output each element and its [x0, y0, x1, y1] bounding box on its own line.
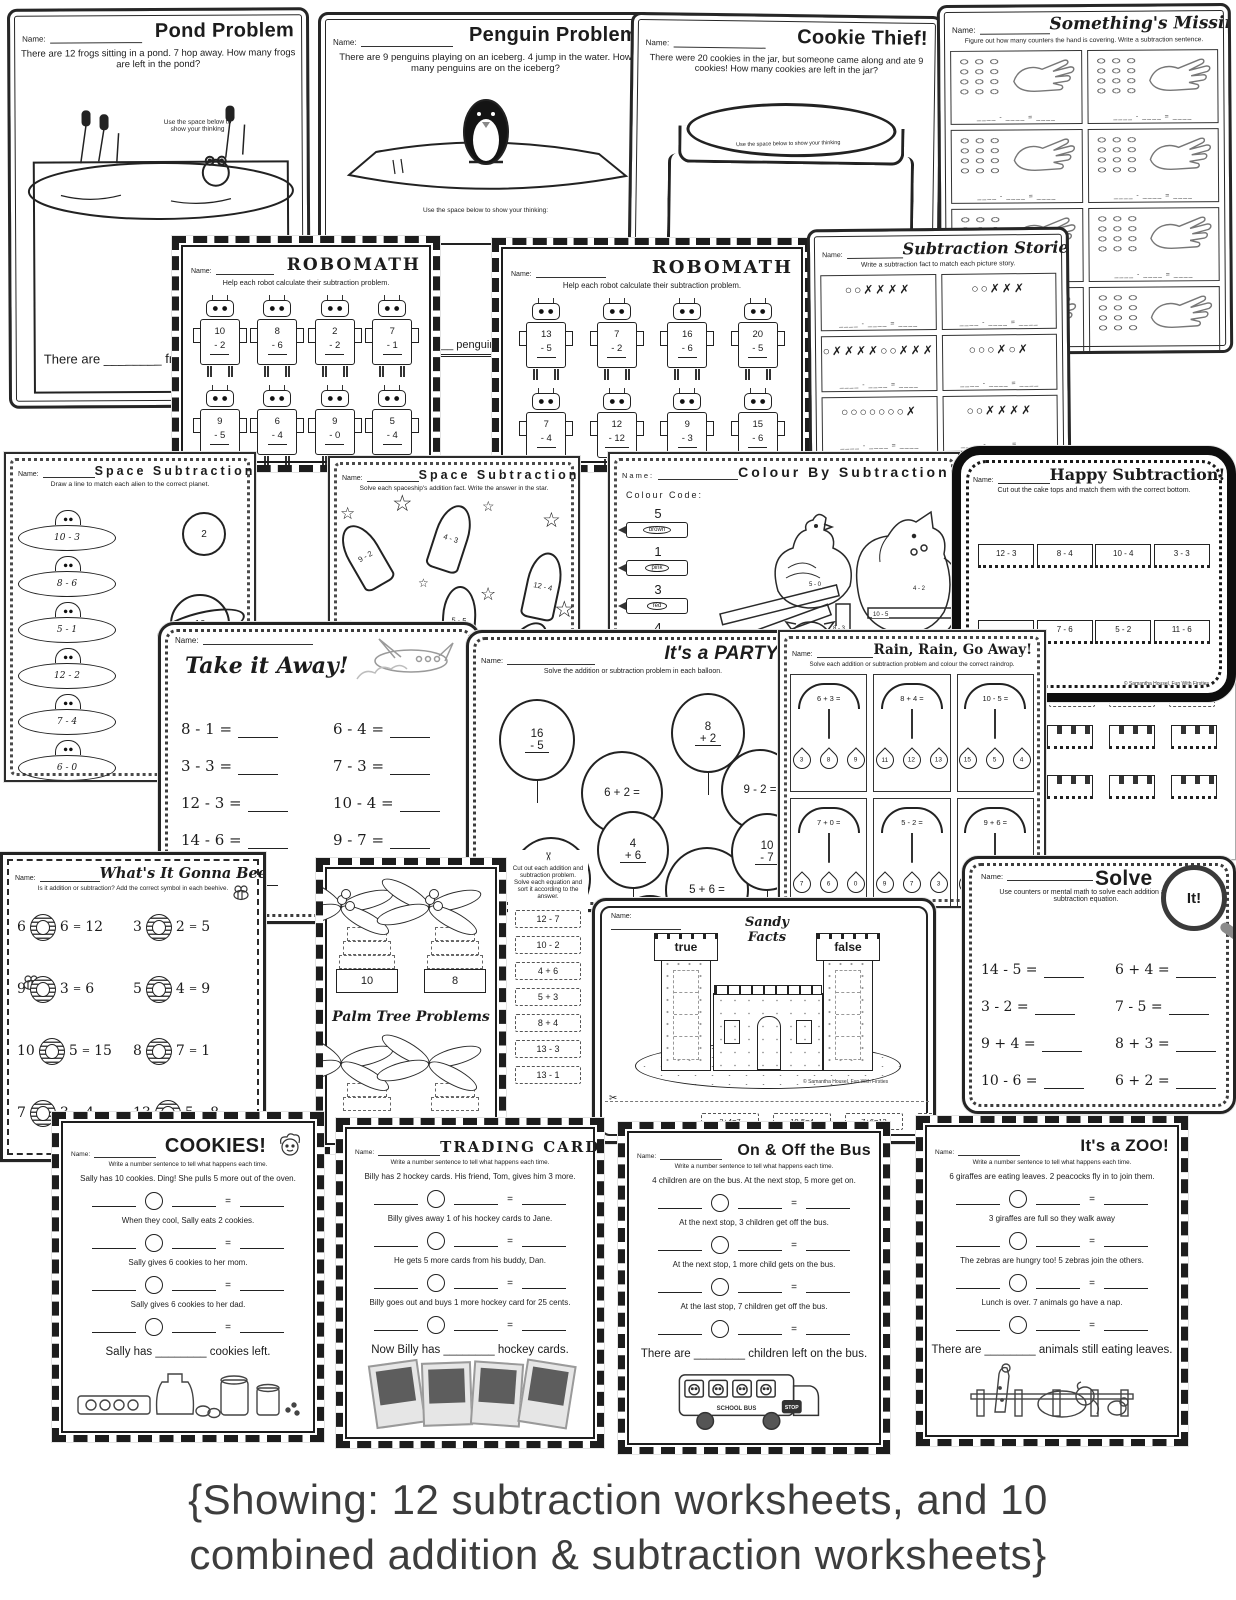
answer-blank — [1104, 1193, 1148, 1205]
subtrahend: - 1 — [383, 339, 402, 354]
instructions: Use counters or mental math to solve eac… — [981, 889, 1191, 903]
equation-row: 9 + 4 = — [981, 1015, 1084, 1052]
coconut-icon — [341, 889, 351, 899]
raindrop-icon: 3 — [926, 871, 951, 896]
svg-text:STOP: STOP — [785, 1405, 799, 1411]
umbrella-equation: 8 + 4 = — [900, 694, 923, 703]
beehive-icon — [146, 976, 172, 1003]
answer-blank — [240, 1195, 284, 1207]
name-blank — [216, 265, 274, 275]
balloon-equation: 16 — [531, 728, 544, 740]
story-sentence: When they cool, Sally eats 2 cookies. — [59, 1216, 317, 1225]
subtraction-sentence-blanks: ____ - ____ = ____ — [952, 114, 1082, 122]
story-sentence: The zebras are hungry too! 5 zebras join… — [923, 1256, 1181, 1265]
umbrella-icon: 9 + 6 = — [964, 807, 1026, 833]
picture-story-box: ○○✗✗✗✗ ____ - ____ = ____ — [942, 395, 1058, 452]
crayon-icon: brown — [626, 522, 688, 538]
trunk-segment — [343, 941, 391, 955]
operation-circle — [1009, 1232, 1027, 1250]
number-blank — [454, 1277, 498, 1289]
cut-out-cake-top-space — [978, 578, 1032, 620]
equals-sign: = — [82, 1046, 90, 1057]
number-blank — [658, 1323, 702, 1335]
castle-window — [796, 1020, 812, 1044]
cut-out-cake-top-space — [1037, 578, 1091, 620]
instructions: Write a number sentence to tell what hap… — [59, 1161, 317, 1168]
cake-matching-cell: 11 - 6 — [1154, 578, 1210, 644]
robot-problem: 16- 6 — [667, 298, 707, 380]
subtraction-problem-row: 12 - 3 = — [181, 775, 288, 812]
sheet-cookies: Name: COOKIES! Write a number sentence t… — [52, 1112, 324, 1442]
story-step: Sally has 10 cookies. Ding! She pulls 5 … — [59, 1174, 317, 1210]
true-turret: true — [654, 933, 718, 961]
subtraction-sentence-blanks: ____ - ____ = ____ — [1088, 113, 1218, 121]
picture-story-box: ○○○✗○✗ ____ - ____ = ____ — [941, 334, 1057, 391]
rocket-problem: 9 - 2 — [333, 518, 396, 594]
answer-blank — [522, 1235, 566, 1247]
equation-text: 6 + 4 = — [1115, 962, 1170, 978]
answer-blank — [1044, 964, 1084, 978]
equation-text: 14 - 5 = — [981, 962, 1038, 978]
raindrop-icon: 9 — [843, 747, 868, 772]
umbrella-icon: 6 + 3 = — [798, 683, 860, 709]
robot-head-icon — [263, 300, 291, 317]
umbrella-problem-cell: 7 + 0 = 7 6 0 — [790, 798, 867, 908]
cake-icon — [1047, 725, 1093, 749]
equation-text: 8 - 3 = — [981, 1110, 1029, 1114]
operation-circle — [711, 1278, 729, 1296]
hockey-cards-illustration — [364, 1360, 576, 1426]
umbrella-icon: 5 - 2 = — [881, 807, 943, 833]
cake-bottom-equation: 11 - 6 — [1154, 620, 1210, 644]
umbrella-handle-icon — [994, 709, 996, 739]
name-label: Name: — [792, 651, 813, 658]
answer-blank — [522, 1319, 566, 1331]
coconut-icon — [429, 889, 439, 899]
result: 5 — [201, 919, 210, 935]
name-label: Name: — [333, 38, 357, 47]
story-sentence: Billy goes out and buys 1 more hockey ca… — [343, 1298, 597, 1307]
minuend: 10 — [201, 325, 239, 339]
problem-text: 6 - 4 = — [333, 720, 384, 738]
raindrop-icon: 12 — [899, 747, 924, 772]
number-blank — [738, 1197, 782, 1209]
minuend: 9 — [668, 418, 706, 432]
operation-circle — [427, 1274, 445, 1292]
story-sentence: He gets 5 more cards from his buddy, Dan… — [343, 1256, 597, 1265]
cut-out-equation-card: 8 + 4 — [515, 1014, 581, 1032]
minuend: 20 — [739, 328, 777, 342]
answer-blank — [240, 1237, 284, 1249]
robot-legs-icon — [379, 366, 405, 377]
crayon-icon: red — [626, 598, 688, 614]
trunk-number: 8 — [424, 969, 486, 993]
answer-blank — [1104, 1319, 1148, 1331]
cut-out-equation-card: 5 + 3 — [515, 988, 581, 1006]
balloon-problem: 4 + 6 — [597, 811, 669, 889]
number-blank — [374, 1193, 418, 1205]
story-step: Sally gives 6 cookies to her dad. = — [59, 1300, 317, 1336]
operand-b: 5 — [69, 1043, 78, 1059]
robot-legs-icon — [207, 366, 233, 377]
balloon-equation: 4 — [630, 838, 636, 850]
equals-sign: = — [73, 984, 81, 995]
subtraction-sentence-blanks: ____ - ____ = ____ — [943, 380, 1057, 388]
name-label: Name: — [15, 875, 36, 882]
equals-sign: = — [1089, 1320, 1095, 1331]
number-blank — [738, 1323, 782, 1335]
minuend: 7 — [373, 325, 411, 339]
penguin-iceberg-illustration — [331, 80, 641, 205]
colour-code-item: 1 pink — [626, 544, 690, 576]
counters-icon — [1095, 214, 1137, 252]
sheet-solve-it: Name: Solve It! Use counters or mental m… — [962, 856, 1236, 1114]
answer-blank — [238, 761, 278, 775]
subtrahend: - 5 — [210, 429, 229, 444]
robot-problem: 8- 6 — [257, 295, 297, 377]
balloon-equation-bottom: - 5 — [525, 740, 548, 753]
answer-blank — [248, 835, 288, 849]
picture-story-box: ○○✗✗✗ ____ - ____ = ____ — [941, 273, 1057, 330]
subtraction-sentence-blanks: ____ - ____ = ____ — [1090, 350, 1220, 355]
operation-circle — [427, 1190, 445, 1208]
operation-circle — [427, 1316, 445, 1334]
minuend: 9 — [201, 415, 239, 429]
page-title: Colour By Subtraction Fact — [738, 464, 960, 480]
answer-blank — [806, 1197, 850, 1209]
minuend: 9 — [316, 415, 354, 429]
answer-blank — [806, 1323, 850, 1335]
subtraction-sentence-blanks: ____ - ____ = ____ — [1089, 271, 1219, 279]
number-blank — [374, 1235, 418, 1247]
name-blank — [40, 872, 100, 882]
rocket-equation: 9 - 2 — [356, 548, 374, 563]
cut-out-equation-card: 10 - 2 — [515, 936, 581, 954]
name-label: Name: — [637, 1153, 656, 1160]
scissors-icon: ✂ — [609, 1093, 617, 1104]
subtrahend: - 3 — [678, 432, 697, 447]
subtrahend: - 5 — [748, 342, 767, 357]
robot-legs-icon — [322, 366, 348, 377]
name-label: Name: — [981, 872, 1003, 881]
answer-blank — [390, 761, 430, 775]
minuend: 2 — [316, 325, 354, 339]
beehive-icon — [39, 1038, 65, 1065]
balloon-equation: 8 — [705, 721, 711, 733]
sheet-palm-tree-problems: 10 8 Palm Tree Problems — [316, 858, 506, 1154]
story-sentence: 6 giraffes are eating leaves. 2 peacocks… — [923, 1172, 1181, 1181]
answer-blank — [1042, 1038, 1082, 1052]
name-label: Name: — [622, 471, 654, 480]
number-blank — [1036, 1319, 1080, 1331]
answer-blank — [1044, 1075, 1084, 1089]
counters-icon — [1094, 135, 1136, 173]
subtraction-problem-row: 7 - 3 = — [333, 738, 440, 775]
story-sentence: At the next stop, 3 children get off the… — [625, 1218, 883, 1227]
equation-row: 6 + 4 = — [1115, 941, 1218, 978]
hand-icon — [1148, 214, 1214, 251]
operation-circle — [1009, 1316, 1027, 1334]
page-title: What's It Gonna Bee? — [100, 865, 266, 882]
castle-wall — [713, 993, 823, 1071]
minuend: 15 — [739, 418, 777, 432]
subtraction-sentence-blanks: ____ - ____ = ____ — [952, 193, 1082, 201]
raindrop-icon: 7 — [899, 871, 924, 896]
hand-icon — [1148, 135, 1214, 172]
answer-blank — [522, 1277, 566, 1289]
minuend: 16 — [668, 328, 706, 342]
robot-problem: 10- 2 — [200, 295, 240, 377]
subtrahend: - 6 — [268, 339, 287, 354]
picture-story-items: ○○✗✗✗ — [942, 282, 1056, 296]
cake-icon — [1171, 725, 1217, 749]
number-blank — [172, 1195, 216, 1207]
story-step: At the next stop, 1 more child gets on t… — [625, 1260, 883, 1296]
robot-problem: 7- 2 — [597, 298, 637, 380]
equals-sign: = — [507, 1194, 513, 1205]
beehive-problem: 8 7 = 1 — [133, 1020, 249, 1082]
operand-b: 3 — [60, 981, 69, 997]
umbrella-handle-icon — [828, 833, 830, 863]
hint-text: Use the space below to show your thinkin… — [321, 207, 650, 214]
problem-prompt: There were 20 cookies in the jar, but so… — [633, 52, 939, 76]
name-blank — [660, 1150, 722, 1160]
equation-row: 3 - 2 = — [981, 978, 1084, 1015]
problem-text: 10 - 4 = — [333, 794, 394, 812]
answer-blank — [1169, 1001, 1209, 1015]
equation-text: 3 - 2 = — [981, 999, 1029, 1015]
beehive-icon — [30, 914, 56, 941]
balloon-equation-bottom: - 7 — [755, 852, 778, 865]
subtraction-problem-row: 10 - 4 = — [333, 775, 440, 812]
cut-out-cake-top-space — [1095, 502, 1149, 544]
cut-out-cake-top-space — [1037, 502, 1091, 544]
robot-head-icon — [321, 300, 349, 317]
beehive-problem: 3 2 = 5 — [133, 896, 249, 958]
trunk-segment — [339, 955, 395, 969]
result: 6 — [85, 981, 94, 997]
equals-sign: = — [189, 922, 197, 933]
baking-ingredients-illustration — [73, 1364, 303, 1420]
answer-blank — [1104, 1277, 1148, 1289]
name-blank — [378, 1146, 440, 1156]
number-blank — [956, 1319, 1000, 1331]
subtraction-problem-row: 3 - 3 = — [181, 738, 288, 775]
raindrop-icon: 5 — [983, 747, 1008, 772]
name-label: Name: — [646, 38, 670, 47]
robot-problem: 9- 0 — [315, 385, 355, 467]
story-step: The zebras are hungry too! 5 zebras join… — [923, 1256, 1181, 1292]
colour-code-item: 5 brown — [626, 506, 690, 538]
page-title: Palm Tree Problems — [323, 1009, 499, 1025]
story-step: Sally gives 6 cookies to her mom. = — [59, 1258, 317, 1294]
story-step: He gets 5 more cards from his buddy, Dan… — [343, 1256, 597, 1292]
operand-a: 6 — [17, 919, 26, 935]
name-label: Name: — [175, 636, 199, 645]
equals-sign: = — [791, 1324, 797, 1335]
sheet-on-off-the-bus: Name: On & Off the Bus Write a number se… — [618, 1122, 890, 1454]
castle-window — [724, 1020, 740, 1044]
operation-circle — [1009, 1274, 1027, 1292]
caption-line-2: combined addition & subtraction workshee… — [0, 1527, 1236, 1582]
number-blank — [738, 1281, 782, 1293]
answer-blank — [238, 724, 278, 738]
hand-icon — [1011, 136, 1077, 173]
colour-fact: 5 - 0 — [808, 582, 822, 588]
robot-head-icon — [673, 393, 701, 410]
number-blank — [658, 1239, 702, 1251]
trunk-segment — [431, 941, 479, 955]
subtraction-sentence-blanks: ____ - ____ = ____ — [822, 320, 936, 328]
cut-out-equation-card: 4 + 6 — [515, 962, 581, 980]
counters-icon — [1095, 293, 1137, 331]
robot-legs-icon — [264, 366, 290, 377]
robot-problem: 2- 2 — [315, 295, 355, 377]
cake-matching-cell: 3 - 3 — [1154, 502, 1210, 568]
counter-problem-box: ____ - ____ = ____ — [1087, 128, 1219, 203]
equals-sign: = — [1089, 1278, 1095, 1289]
robot-head-icon — [673, 303, 701, 320]
answer-blank — [390, 835, 430, 849]
sheet-trading-cards: Name: TRADING CARDS Write a number sente… — [336, 1118, 604, 1448]
cake-icon — [1171, 775, 1217, 799]
name-label: Name: — [935, 1149, 954, 1156]
umbrella-icon: 8 + 4 = — [881, 683, 943, 709]
palm-tree: 8 — [413, 879, 497, 993]
robot-problem: 7- 1 — [372, 295, 412, 377]
equation-text: 8 + 3 = — [1115, 1036, 1170, 1052]
equals-sign: = — [225, 1196, 231, 1207]
sheet-its-a-zoo: Name: It's a ZOO! Write a number sentenc… — [916, 1116, 1188, 1446]
result: 1 — [201, 1043, 210, 1059]
cut-out-equation-card: 13 - 1 — [515, 1066, 581, 1084]
raindrop-icon: 3 — [789, 747, 814, 772]
instructions: Help each robot calculate their subtract… — [499, 281, 805, 290]
number-blank — [956, 1193, 1000, 1205]
equals-sign: = — [507, 1236, 513, 1247]
problem-text: 9 - 7 = — [333, 831, 384, 849]
number-blank — [658, 1197, 702, 1209]
equals-sign: = — [189, 984, 197, 995]
instructions: Write a number sentence to tell what hap… — [625, 1163, 883, 1170]
answer-line: There are ________ children left on the … — [625, 1348, 883, 1360]
subtrahend: - 4 — [383, 429, 402, 444]
answer-fragment: __ penguin — [439, 337, 497, 359]
problem-text: 8 - 1 = — [181, 720, 232, 738]
number-blank — [92, 1195, 136, 1207]
balloon-equation: 10 — [761, 840, 774, 852]
answer-blank — [1176, 1038, 1216, 1052]
cake-bottom-equation: 8 - 4 — [1037, 544, 1093, 568]
picture-story-items: ○✗✗✗✗○○✗✗✗ — [822, 344, 936, 358]
page-title: Subtraction Stories — [903, 238, 1072, 259]
page-title: Something's Missing... — [1049, 13, 1233, 35]
cut-out-cake-top-space — [978, 502, 1032, 544]
name-blank — [361, 37, 453, 47]
equation-text: 9 + 4 = — [981, 1036, 1036, 1052]
credit-text: © Samantha Housel, Fun With Firsties — [1124, 681, 1209, 687]
cut-out-equation-card: 13 - 3 — [515, 1040, 581, 1058]
page-title: Solve — [1095, 867, 1153, 891]
robot-head-icon — [321, 390, 349, 407]
scissors-icon: ✂ — [542, 850, 555, 897]
page-title: COOKIES! — [165, 1135, 266, 1158]
school-bus-illustration: STOP SCHOOL BUS — [669, 1362, 839, 1432]
operation-circle — [145, 1234, 163, 1252]
subtraction-sentence-blanks: ____ - ____ = ____ — [1089, 192, 1219, 200]
robot-head-icon — [532, 303, 560, 320]
story-sentence: Billy has 2 hockey cards. His friend, To… — [343, 1172, 597, 1181]
subtrahend: - 6 — [678, 342, 697, 357]
problem-text: 7 - 3 = — [333, 757, 384, 775]
page-title: ROBOMATH — [287, 255, 421, 275]
robot-legs-icon — [604, 369, 630, 380]
counter-problem-box: ____ - ____ = ____ — [950, 50, 1082, 125]
operand-a: 7 — [17, 1105, 26, 1121]
credit-text: © Samantha Housel, Fun With Firsties — [803, 1079, 888, 1085]
name-blank — [536, 268, 606, 278]
result: 15 — [94, 1043, 112, 1059]
counters-icon — [957, 57, 999, 95]
problem-text: 14 - 6 = — [181, 831, 242, 849]
umbrella-equation: 10 - 5 = — [983, 694, 1009, 703]
crayon-colour-label: pink — [645, 564, 668, 572]
instructions: Write a number sentence to tell what hap… — [343, 1159, 597, 1166]
zoo-animals-illustration — [967, 1360, 1137, 1418]
umbrella-equation: 6 + 3 = — [817, 694, 840, 703]
story-step: At the next stop, 3 children get off the… — [625, 1218, 883, 1254]
sheet-subtraction-stories: Name: Subtraction Stories Write a subtra… — [807, 227, 1071, 464]
subtrahend: - 0 — [325, 429, 344, 444]
picture-story-box: ○○✗✗✗✗ ____ - ____ = ____ — [820, 274, 936, 331]
raindrop-icon: 7 — [789, 871, 814, 896]
equals-sign: = — [73, 922, 81, 933]
number-blank — [374, 1277, 418, 1289]
picture-story-items: ○○✗✗✗✗ — [821, 283, 935, 297]
subtrahend: - 4 — [537, 432, 556, 447]
number-blank — [92, 1279, 136, 1291]
equals-sign: = — [189, 1046, 197, 1057]
operation-circle — [711, 1236, 729, 1254]
false-turret: false — [816, 933, 880, 961]
robot-problem: 5- 4 — [372, 385, 412, 467]
page-title: TRADING CARDS — [440, 1138, 604, 1156]
pond-illustration — [20, 102, 301, 223]
equals-sign: = — [1089, 1194, 1095, 1205]
raindrop-icon: 0 — [843, 871, 868, 896]
name-blank — [958, 1146, 1020, 1156]
page-title: Happy Subtraction! — [1050, 465, 1226, 484]
number-blank — [374, 1319, 418, 1331]
equals-sign: = — [791, 1240, 797, 1251]
answer-blank — [240, 1321, 284, 1333]
name-blank — [611, 920, 681, 930]
robot-legs-icon — [745, 369, 771, 380]
name-blank — [1007, 871, 1093, 881]
name-blank — [847, 248, 903, 259]
sheet-cut-and-sort-strip: ✂ Cut out each addition and subtraction … — [508, 850, 588, 1160]
picture-story-box: ○○○○○○○✗ ____ - ____ = ____ — [822, 396, 938, 453]
robot-head-icon — [206, 300, 234, 317]
umbrella-problem-cell: 10 - 5 = 15 5 4 — [957, 674, 1034, 792]
answer-blank — [1176, 964, 1216, 978]
answer-blank — [1104, 1235, 1148, 1247]
sandcastle-illustration: true false — [635, 931, 899, 1091]
name-label: Name: — [355, 1149, 374, 1156]
story-sentence: 3 giraffes are full so they walk away — [923, 1214, 1181, 1223]
raindrop-icon: 11 — [872, 747, 897, 772]
robot-head-icon — [603, 393, 631, 410]
